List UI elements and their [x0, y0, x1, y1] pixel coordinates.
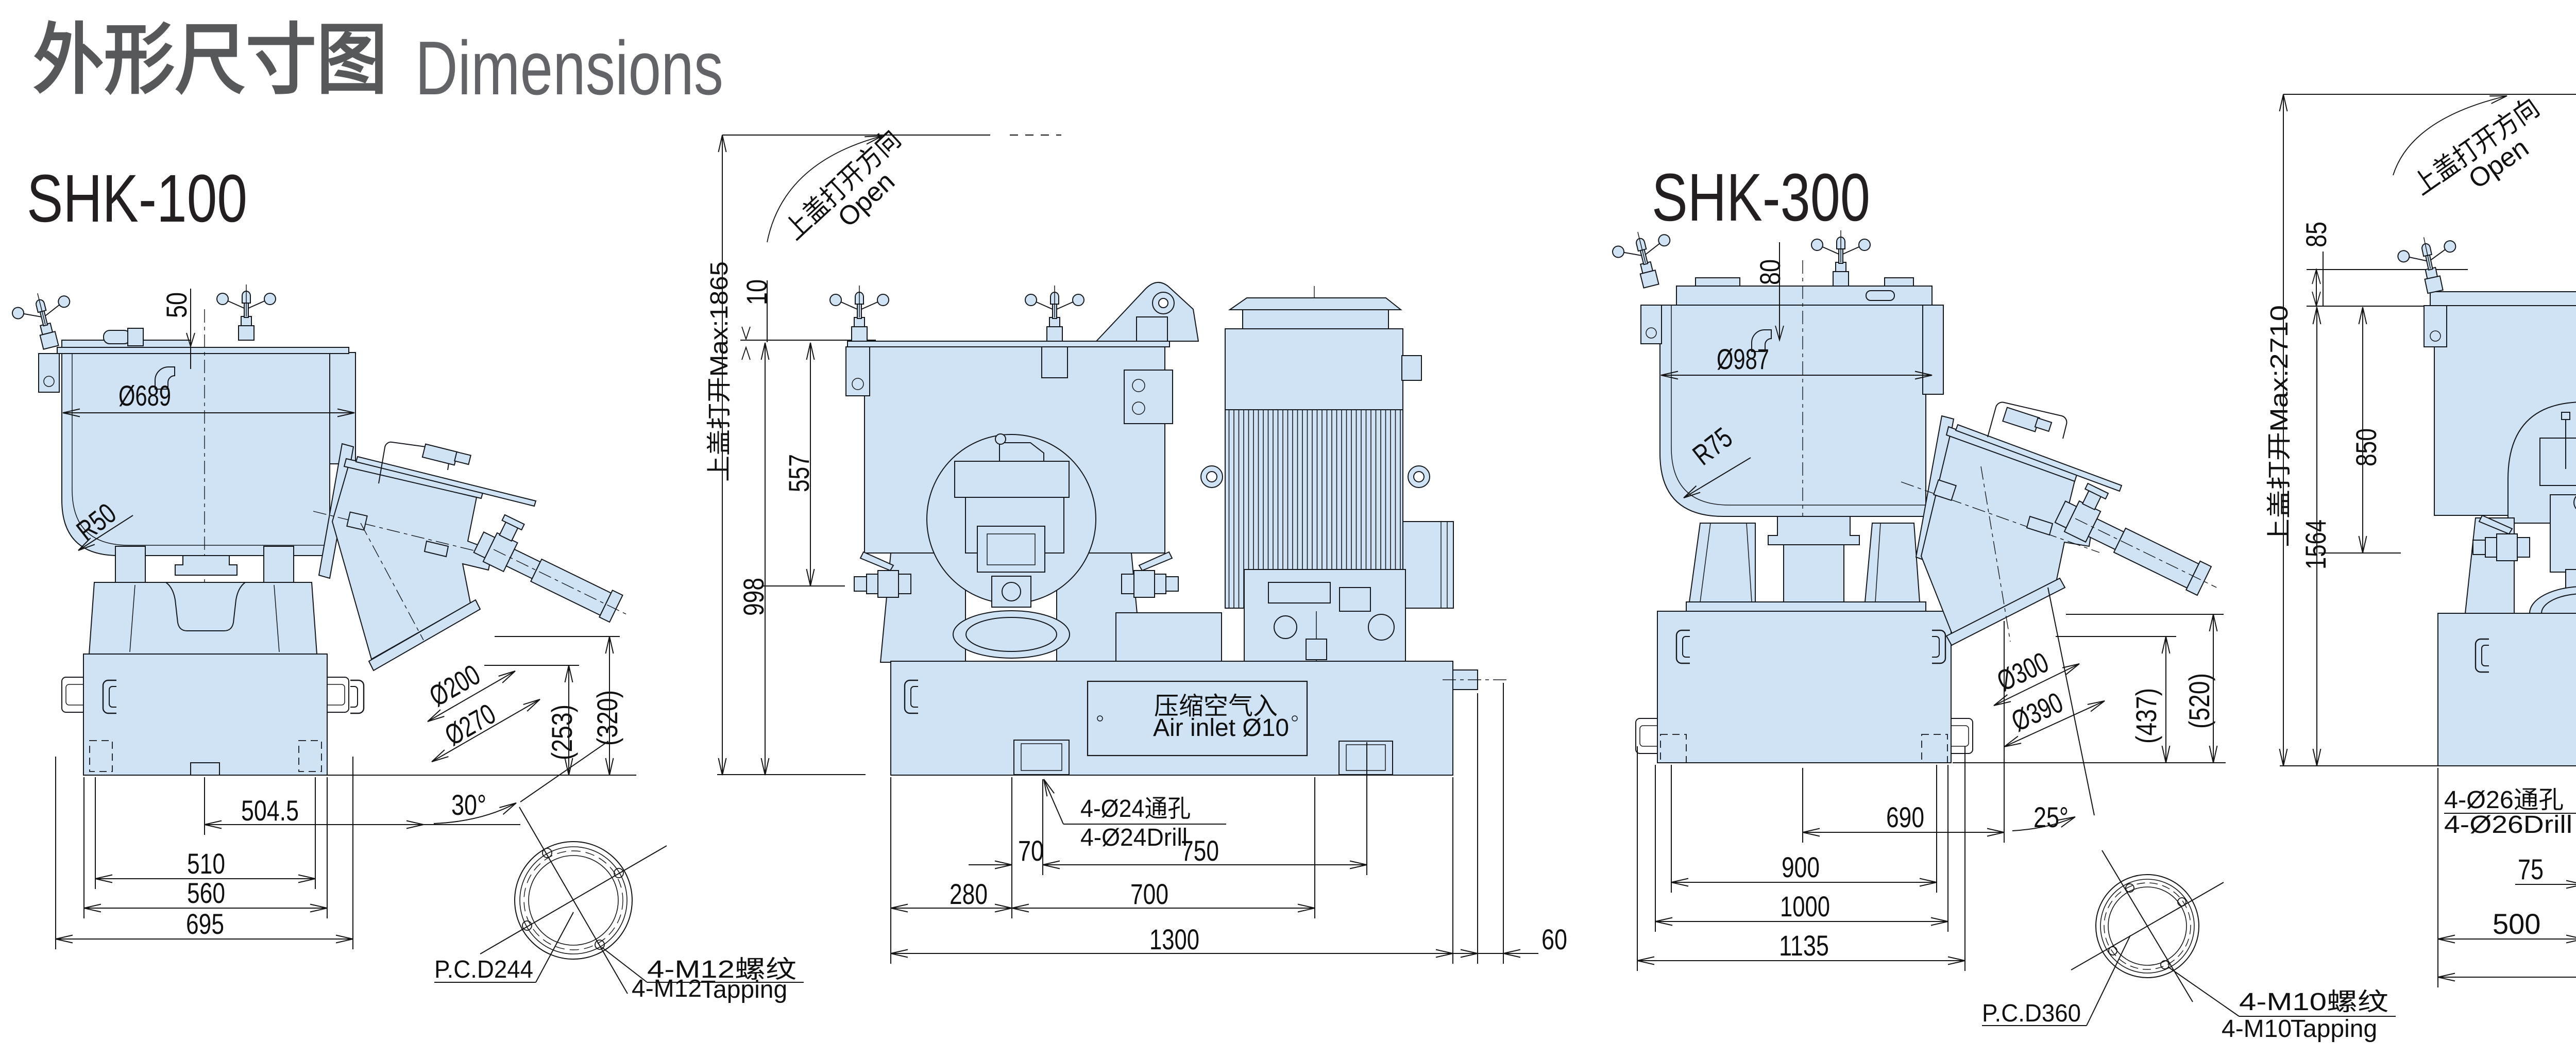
- svg-text:1564: 1564: [2299, 519, 2332, 569]
- svg-text:1300: 1300: [1149, 923, 1199, 956]
- svg-text:Air inlet Ø10: Air inlet Ø10: [1153, 714, 1289, 742]
- svg-text:850: 850: [2350, 428, 2382, 466]
- svg-text:560: 560: [187, 877, 225, 909]
- svg-text:SHK-300: SHK-300: [1652, 159, 1870, 235]
- svg-text:4-M10: 4-M10: [2222, 1015, 2292, 1043]
- svg-text:1135: 1135: [1779, 929, 1829, 962]
- svg-text:(253): (253): [546, 705, 578, 760]
- svg-text:4-Ø26Drill: 4-Ø26Drill: [2444, 811, 2572, 839]
- svg-text:500: 500: [2493, 908, 2540, 940]
- svg-text:80: 80: [1754, 259, 1786, 285]
- svg-text:900: 900: [1782, 851, 1820, 883]
- svg-text:280: 280: [950, 878, 988, 910]
- svg-text:10: 10: [740, 279, 773, 305]
- svg-text:Ø987: Ø987: [1717, 343, 1769, 375]
- svg-text:695: 695: [186, 908, 224, 940]
- svg-text:4-M10螺纹: 4-M10螺纹: [2239, 988, 2388, 1016]
- svg-text:25°: 25°: [2033, 801, 2069, 833]
- svg-text:70: 70: [1018, 834, 1044, 867]
- svg-text:P.C.D360: P.C.D360: [1982, 1000, 2081, 1027]
- svg-text:Tapping: Tapping: [2291, 1015, 2377, 1043]
- svg-text:700: 700: [1130, 878, 1168, 910]
- svg-text:504.5: 504.5: [241, 794, 299, 827]
- svg-text:4-Ø24通孔: 4-Ø24通孔: [1080, 795, 1191, 823]
- svg-text:Tapping: Tapping: [701, 976, 787, 1003]
- svg-text:4-Ø24Drill: 4-Ø24Drill: [1080, 824, 1188, 851]
- svg-text:4-M12: 4-M12: [632, 975, 702, 1002]
- svg-text:Ø689: Ø689: [118, 379, 171, 412]
- svg-text:(437): (437): [2130, 688, 2162, 744]
- svg-text:1000: 1000: [1780, 890, 1830, 923]
- svg-text:750: 750: [1181, 834, 1219, 867]
- svg-text:外形尺寸图: 外形尺寸图: [33, 16, 387, 103]
- svg-text:(320): (320): [591, 690, 623, 746]
- svg-text:510: 510: [187, 847, 225, 880]
- svg-text:SHK-100: SHK-100: [27, 160, 247, 236]
- svg-text:75: 75: [2518, 853, 2544, 885]
- svg-text:4-Ø26通孔: 4-Ø26通孔: [2444, 786, 2564, 814]
- svg-text:690: 690: [1886, 801, 1924, 833]
- svg-text:上盖打开Max:1865: 上盖打开Max:1865: [706, 261, 733, 482]
- svg-text:Dimensions: Dimensions: [415, 26, 723, 111]
- svg-text:30°: 30°: [451, 789, 486, 821]
- svg-text:50: 50: [160, 292, 193, 318]
- svg-text:85: 85: [2300, 222, 2332, 247]
- svg-text:上盖打开Max:2710: 上盖打开Max:2710: [2266, 305, 2293, 547]
- svg-text:60: 60: [1541, 923, 1567, 956]
- svg-text:(520): (520): [2183, 673, 2215, 729]
- svg-text:P.C.D244: P.C.D244: [434, 956, 533, 983]
